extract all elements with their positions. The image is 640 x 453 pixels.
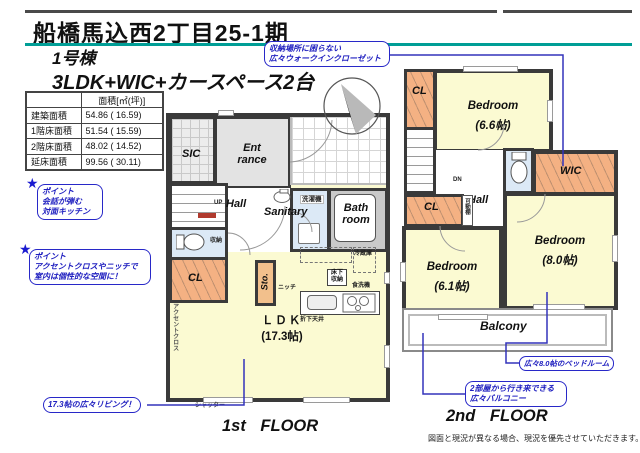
callout-point-accent: ポイント アクセントクロスやニッチで 室内は個性的な空間に！ — [29, 249, 151, 285]
row-label: 2階床面積 — [26, 139, 81, 155]
table-row: 建築面積 54.86 ( 16.59) — [26, 108, 163, 124]
dishwasher-label: 食洗機 — [352, 283, 370, 290]
stairs-down — [404, 127, 436, 194]
kitchen-cupboard — [300, 247, 352, 263]
room-bath-label: Bath room — [334, 203, 378, 226]
room-cl-1f-label: CL — [188, 273, 203, 285]
stove-icon — [342, 293, 376, 313]
floorplan-flyer: 船橋馬込西2丁目25-1期 1号棟 3LDK+WIC+カースペース2台 面積[㎡… — [0, 0, 640, 453]
floor1-caption: 1st FLOOR — [222, 417, 318, 436]
window — [218, 110, 234, 116]
row-value: 99.56 ( 30.11) — [81, 154, 163, 170]
room-bedroom-6-6-label: Bedroom (6.6帖) — [453, 97, 533, 136]
room-cl-2f-mid-label: CL — [424, 202, 439, 214]
floor-storage: 床下 収納 — [327, 269, 347, 286]
sink-icon — [272, 189, 294, 204]
dropped-ceiling-label: 折下天井 — [300, 317, 324, 324]
room-bedroom-6-1-label: Bedroom (6.1帖) — [412, 258, 492, 297]
room-cl-2f-top — [404, 69, 436, 130]
room-sic-label: SIC — [182, 149, 200, 161]
kitchen-sink-icon — [307, 295, 337, 310]
room-sanitary-label: Sanitary — [264, 207, 307, 219]
callout-point-kitchen: ポイント 会話が弾む 対面キッチン — [37, 184, 103, 220]
window — [463, 66, 518, 72]
window — [303, 397, 350, 403]
area-table: 面積[㎡(坪)] 建築面積 54.86 ( 16.59) 1階床面積 51.54… — [25, 91, 164, 171]
window — [612, 235, 618, 262]
row-label: 建築面積 — [26, 108, 81, 124]
window — [438, 314, 488, 320]
stair-up-label: UP — [214, 200, 222, 207]
room-sto-label: Sto. — [260, 266, 269, 298]
disclaimer: 図面と現況が異なる場合、現況を優先させていただきます。 — [428, 433, 640, 444]
door-gap — [547, 100, 553, 122]
window — [384, 272, 390, 284]
toilet-icon — [176, 231, 206, 253]
room-bedroom-8-0-label: Bedroom (8.0帖) — [518, 232, 602, 271]
window — [533, 304, 585, 310]
callout-wic: 収納場所に困らない 広々ウォークインクローゼット — [264, 41, 390, 67]
shutter-label: シャッター — [195, 403, 225, 410]
table-row: 1階床面積 51.54 ( 15.59) — [26, 123, 163, 139]
window — [400, 262, 406, 282]
floor1-outline: SIC Ent rance UP Hall Sanitary 洗濯機 Bath … — [166, 113, 390, 402]
top-rule-right — [503, 10, 632, 13]
movable-shelf-label: 可動棚 — [464, 198, 470, 224]
table-row: 延床面積 99.56 ( 30.11) — [26, 154, 163, 170]
stair-landing-mark — [198, 213, 216, 218]
fridge-label: 冷蔵庫 — [354, 251, 372, 258]
stair-dn-label: DN — [453, 177, 462, 184]
building-name: 1号棟 — [52, 50, 95, 68]
entrance-porch — [290, 117, 386, 185]
callout-living: 17.3帖の広々リビング！ — [43, 397, 141, 413]
room-entrance-label: Ent rance — [226, 143, 278, 166]
row-value: 54.86 ( 16.59) — [81, 108, 163, 124]
room-hall-1f-label: Hall — [226, 199, 246, 211]
room-cl-2f-top-label: CL — [412, 86, 427, 98]
balcony-label: Balcony — [478, 320, 529, 333]
washer-label: 洗濯機 — [300, 195, 324, 204]
table-row: 2階床面積 48.02 ( 14.52) — [26, 139, 163, 155]
row-label: 延床面積 — [26, 154, 81, 170]
row-value: 48.02 ( 14.52) — [81, 139, 163, 155]
room-wic-label: WIC — [560, 166, 581, 178]
area-table-header: 面積[㎡(坪)] — [81, 92, 163, 108]
area-table-corner — [26, 92, 81, 108]
callout-bedroom8: 広々8.0帖のベッドルーム — [519, 356, 614, 371]
accent-cloth-label: アクセントクロス — [171, 303, 178, 395]
callout-balcony: 2部屋から行き来できる 広々バルコニー — [465, 381, 567, 407]
toilet-icon — [509, 152, 529, 188]
row-value: 51.54 ( 15.59) — [81, 123, 163, 139]
washer-pan — [298, 223, 320, 244]
window — [384, 345, 390, 368]
niche-label: ニッチ — [278, 285, 296, 292]
top-rule-left — [25, 10, 497, 13]
toilet-storage-label: 収納 — [210, 238, 222, 245]
floor2-caption: 2nd FLOOR — [446, 407, 548, 426]
row-label: 1階床面積 — [26, 123, 81, 139]
